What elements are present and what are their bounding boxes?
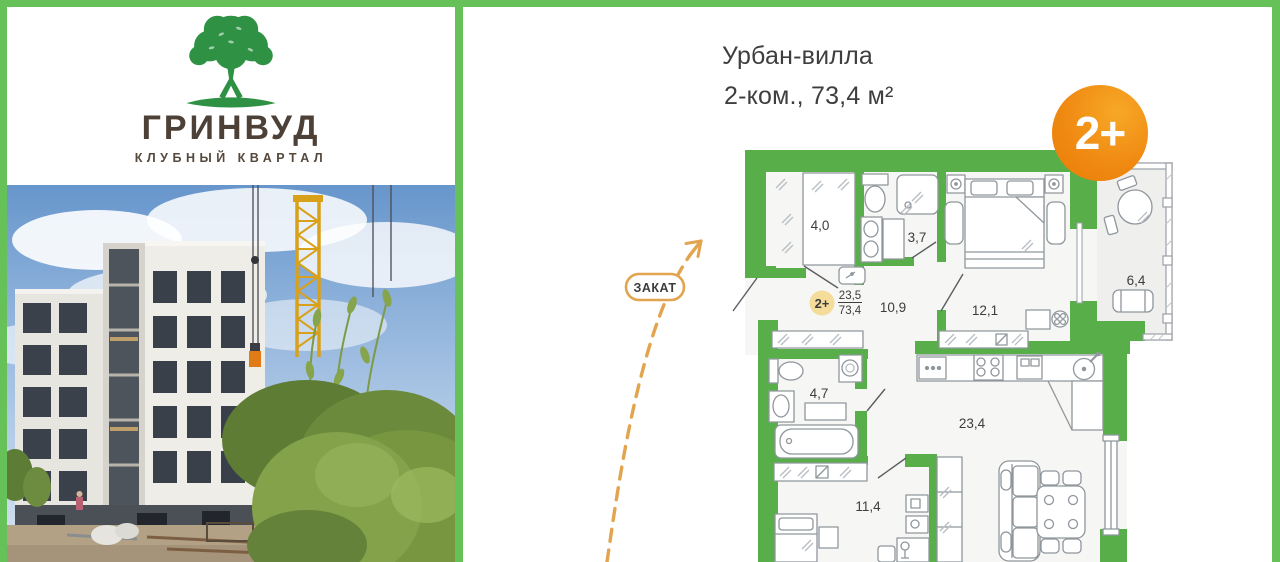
construction-photo-art [7,185,455,562]
nightstand2 [819,527,838,548]
room-label-bathroom2: 4,7 [810,386,829,401]
shower [897,175,938,214]
brand-name: ГРИНВУД [142,111,321,145]
plan-card[interactable]: Урбан-вилла 2-ком., 73,4 м² [463,0,1272,562]
dining-chair [1041,539,1059,553]
toilet-bowl [865,186,885,212]
shower-drain [905,202,911,208]
pillow [779,518,813,530]
dining-chair [1041,471,1059,485]
desk-lamp [901,542,909,550]
pillow [1007,181,1033,195]
toilet-tank [862,174,888,185]
toilet2-bowl [779,362,803,380]
room-label-bedroom2: 11,4 [855,499,881,514]
room-label-kitchen-living: 23,4 [959,416,986,431]
toilet2-tank [769,359,778,383]
page: { "brand": { "name": "ГРИНВУД", "tagline… [0,0,1280,562]
nightstand [945,202,963,244]
desk-chair [878,546,895,562]
room-label-wardrobe: 4,0 [811,218,830,233]
sunset-label: ЗАКАТ [633,281,676,295]
sofa-pillow [1001,470,1011,490]
tag-total-area: 73,4 [839,305,862,317]
room-label-bedroom: 12,1 [972,303,998,318]
sink2 [773,395,789,417]
sunset-compass: ЗАКАТ [607,241,701,562]
dining-chair [1063,471,1081,485]
frame-divider [455,0,463,562]
room-label-balcony: 6,4 [1127,273,1146,288]
sofa-cushion [1013,528,1038,558]
floor-plan: 4,0 3,7 10,9 12,1 6,4 4,7 23,4 11,4 2+ 2… [463,0,1272,562]
bath2-cabinet [805,403,846,420]
frame-right-border [1272,0,1280,562]
living-wardrobe [937,457,962,562]
frame-left-border [0,0,7,562]
tree-icon [171,7,291,109]
dining-chair [1063,539,1081,553]
dining-table [1037,486,1085,538]
brand-logo-block: ГРИНВУД КЛУБНЫЙ КВАРТАЛ [7,7,455,185]
sofa-cushion [1013,497,1038,527]
balcony-table [1118,190,1152,224]
construction-photo [7,185,455,562]
rooms-badge: 2+ [1052,85,1148,181]
bath-cabinet [883,219,904,259]
sofa-pillow [1001,532,1011,552]
sink-2 [864,241,878,257]
tv-bench [1026,310,1050,329]
flower-icon [1052,311,1068,327]
bathtub-drain [787,439,792,444]
tag-rooms: 2+ [815,296,830,311]
sofa-cushion [1013,466,1038,496]
corner-counter [1072,381,1103,430]
sink-1 [864,221,878,237]
room-label-bathroom: 3,7 [908,230,927,245]
balcony-bench [1113,290,1153,312]
nightstand [1047,202,1065,244]
balcony-door [1077,223,1082,303]
room-label-hallway: 10,9 [880,300,906,315]
tag-living-area: 23,5 [839,290,861,302]
brand-tagline: КЛУБНЫЙ КВАРТАЛ [135,151,327,165]
pillow [971,181,997,195]
